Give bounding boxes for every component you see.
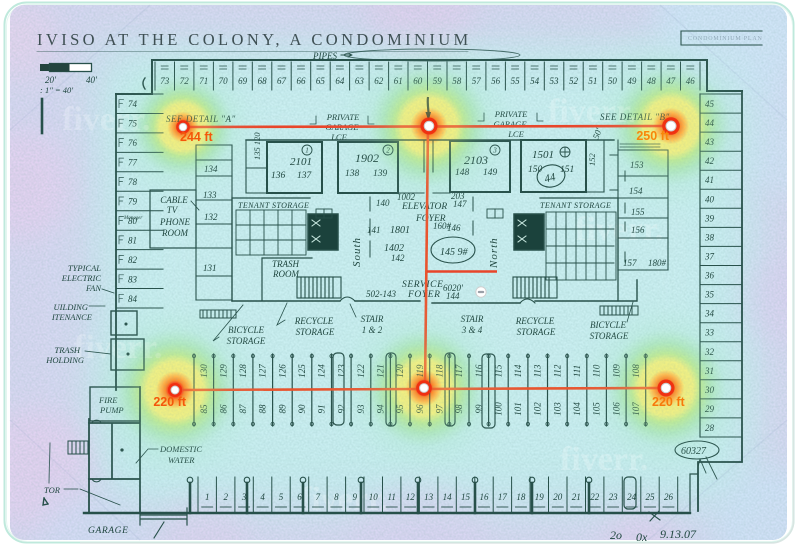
svg-text:ROOM: ROOM [272, 269, 299, 279]
svg-text:2: 2 [223, 492, 228, 502]
svg-text:4: 4 [260, 492, 265, 502]
svg-text:5: 5 [279, 492, 284, 502]
svg-text:8: 8 [334, 492, 339, 502]
svg-text:67: 67 [277, 76, 287, 86]
svg-text:10: 10 [369, 492, 379, 502]
svg-text:20: 20 [553, 492, 563, 502]
svg-text:0x: 0x [636, 530, 648, 544]
svg-text:North: North [488, 237, 500, 269]
svg-text:7: 7 [316, 492, 321, 502]
svg-text:RECYCLE: RECYCLE [294, 316, 334, 326]
svg-text:UILDING: UILDING [54, 302, 88, 312]
svg-text:TRASH: TRASH [272, 259, 300, 269]
svg-text:83: 83 [128, 274, 138, 284]
svg-text:145 9#: 145 9# [440, 247, 469, 258]
svg-text:17: 17 [498, 492, 508, 502]
svg-text:66: 66 [297, 76, 307, 86]
svg-text:GARAGE: GARAGE [88, 526, 129, 536]
svg-text:220 ft: 220 ft [153, 395, 186, 409]
svg-text:21: 21 [572, 492, 581, 502]
svg-text:STORAGE: STORAGE [517, 327, 556, 337]
svg-text:250 ft: 250 ft [636, 129, 669, 143]
svg-text:82: 82 [128, 255, 138, 265]
svg-text:16: 16 [480, 492, 490, 502]
svg-text:23: 23 [609, 492, 619, 502]
svg-text:40': 40' [86, 75, 98, 85]
svg-text:113: 113 [533, 364, 543, 377]
svg-text:244 ft: 244 ft [180, 130, 213, 144]
svg-text:2101: 2101 [290, 156, 312, 168]
svg-text:TENANT STORAGE: TENANT STORAGE [238, 201, 309, 210]
svg-text:90: 90 [297, 404, 307, 414]
svg-text:11: 11 [388, 492, 396, 502]
svg-text:: 1" = 40': : 1" = 40' [40, 85, 73, 95]
svg-text:22: 22 [590, 492, 600, 502]
svg-text:131: 131 [203, 263, 217, 273]
svg-text:180#: 180# [648, 258, 667, 268]
svg-text:ROOM: ROOM [161, 228, 188, 238]
svg-text:FAN: FAN [85, 283, 102, 293]
svg-text:1: 1 [305, 147, 309, 155]
svg-text:South: South [351, 237, 363, 267]
svg-text:54: 54 [530, 76, 540, 86]
svg-text:53: 53 [550, 76, 560, 86]
svg-text:141: 141 [367, 225, 381, 235]
svg-text:9.13.07: 9.13.07 [660, 527, 697, 541]
svg-text:137: 137 [297, 171, 313, 181]
svg-text:TYPICAL: TYPICAL [68, 263, 101, 273]
svg-text:136: 136 [271, 171, 286, 181]
svg-text:ELECTRIC: ELECTRIC [61, 273, 102, 283]
svg-text:9: 9 [353, 492, 358, 502]
svg-text:37: 37 [704, 252, 715, 262]
svg-text:STORAGE: STORAGE [296, 327, 335, 337]
svg-text:65: 65 [316, 76, 326, 86]
svg-text:20': 20' [45, 75, 57, 85]
svg-text:36: 36 [704, 271, 715, 281]
svg-text:24: 24 [627, 492, 637, 502]
svg-text:102: 102 [533, 402, 543, 416]
svg-text:19: 19 [535, 492, 545, 502]
svg-text:81: 81 [128, 235, 137, 245]
svg-text:6: 6 [297, 492, 302, 502]
svg-text:RECYCLE: RECYCLE [515, 316, 555, 326]
svg-text:TOR: TOR [44, 485, 61, 495]
svg-text:Manager: Manager [123, 216, 142, 221]
svg-text:125: 125 [297, 364, 307, 378]
svg-text:18: 18 [516, 492, 526, 502]
svg-text:142: 142 [391, 253, 405, 263]
svg-text:ITENANCE: ITENANCE [51, 312, 93, 322]
svg-text:2o: 2o [610, 528, 622, 542]
svg-text:38: 38 [704, 232, 715, 242]
svg-text:220 ft: 220 ft [652, 395, 685, 409]
svg-text:15: 15 [461, 492, 471, 502]
